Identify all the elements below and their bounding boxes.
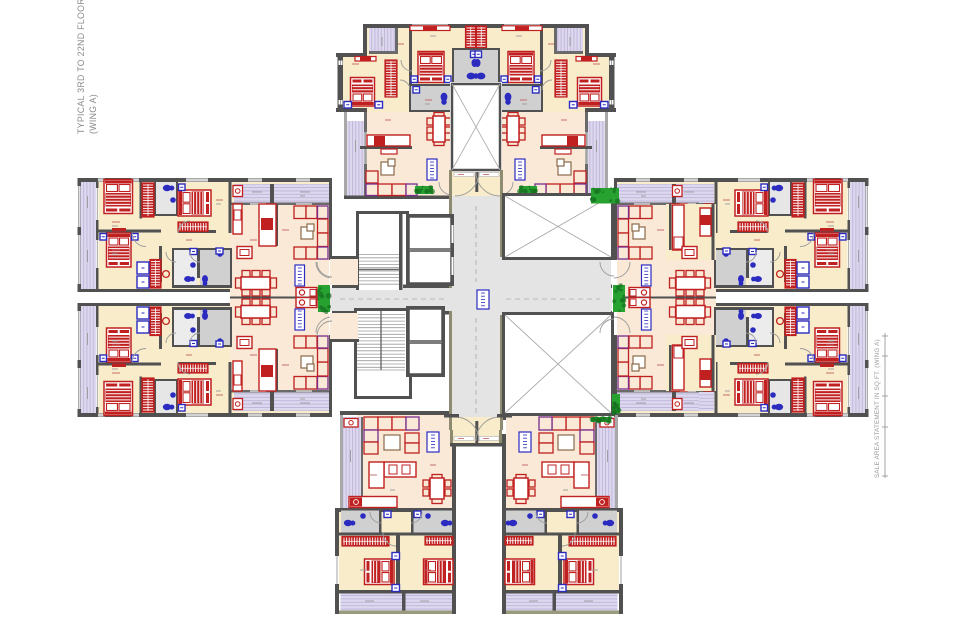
svg-text:SALE AREA STATEMENT IN SQ.FT.: SALE AREA STATEMENT IN SQ.FT. (WING A) (874, 339, 881, 478)
svg-text:TYPICAL 3RD TO 22ND FLOOR: TYPICAL 3RD TO 22ND FLOOR (76, 0, 86, 134)
svg-text:(WING A): (WING A) (88, 94, 98, 134)
